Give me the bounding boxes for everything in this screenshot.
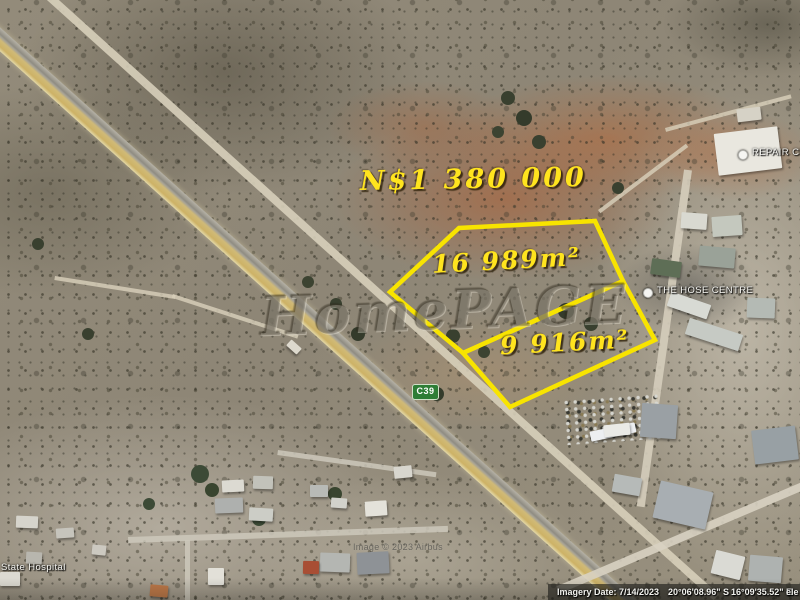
elevation-text: ele [786,587,799,597]
price-label: N$1 380 000 [360,162,587,197]
hose-centre-label[interactable]: THE HOSE CENTRE [657,285,753,296]
road-shield-c39: C39 [412,384,439,400]
longitude-text: 16°09'35.52" E [731,587,792,597]
satellite-map-screenshot: N$1 380 000 16 989m² 9 916m² HomePAGE C3… [0,0,800,600]
state-hospital-label[interactable]: State Hospital [1,562,66,573]
repair-centre-label[interactable]: REPAIR CENT [752,147,800,158]
imagery-attribution: Image © 2023 Airbus [353,542,443,552]
homepage-watermark: HomePAGE [259,272,629,349]
latitude-text: 20°06'08.96" S [668,587,729,597]
imagery-date-text: Imagery Date: 7/14/2023 [557,587,659,597]
hose-centre-marker-icon[interactable] [643,288,653,298]
repair-centre-marker-icon[interactable] [738,150,748,160]
